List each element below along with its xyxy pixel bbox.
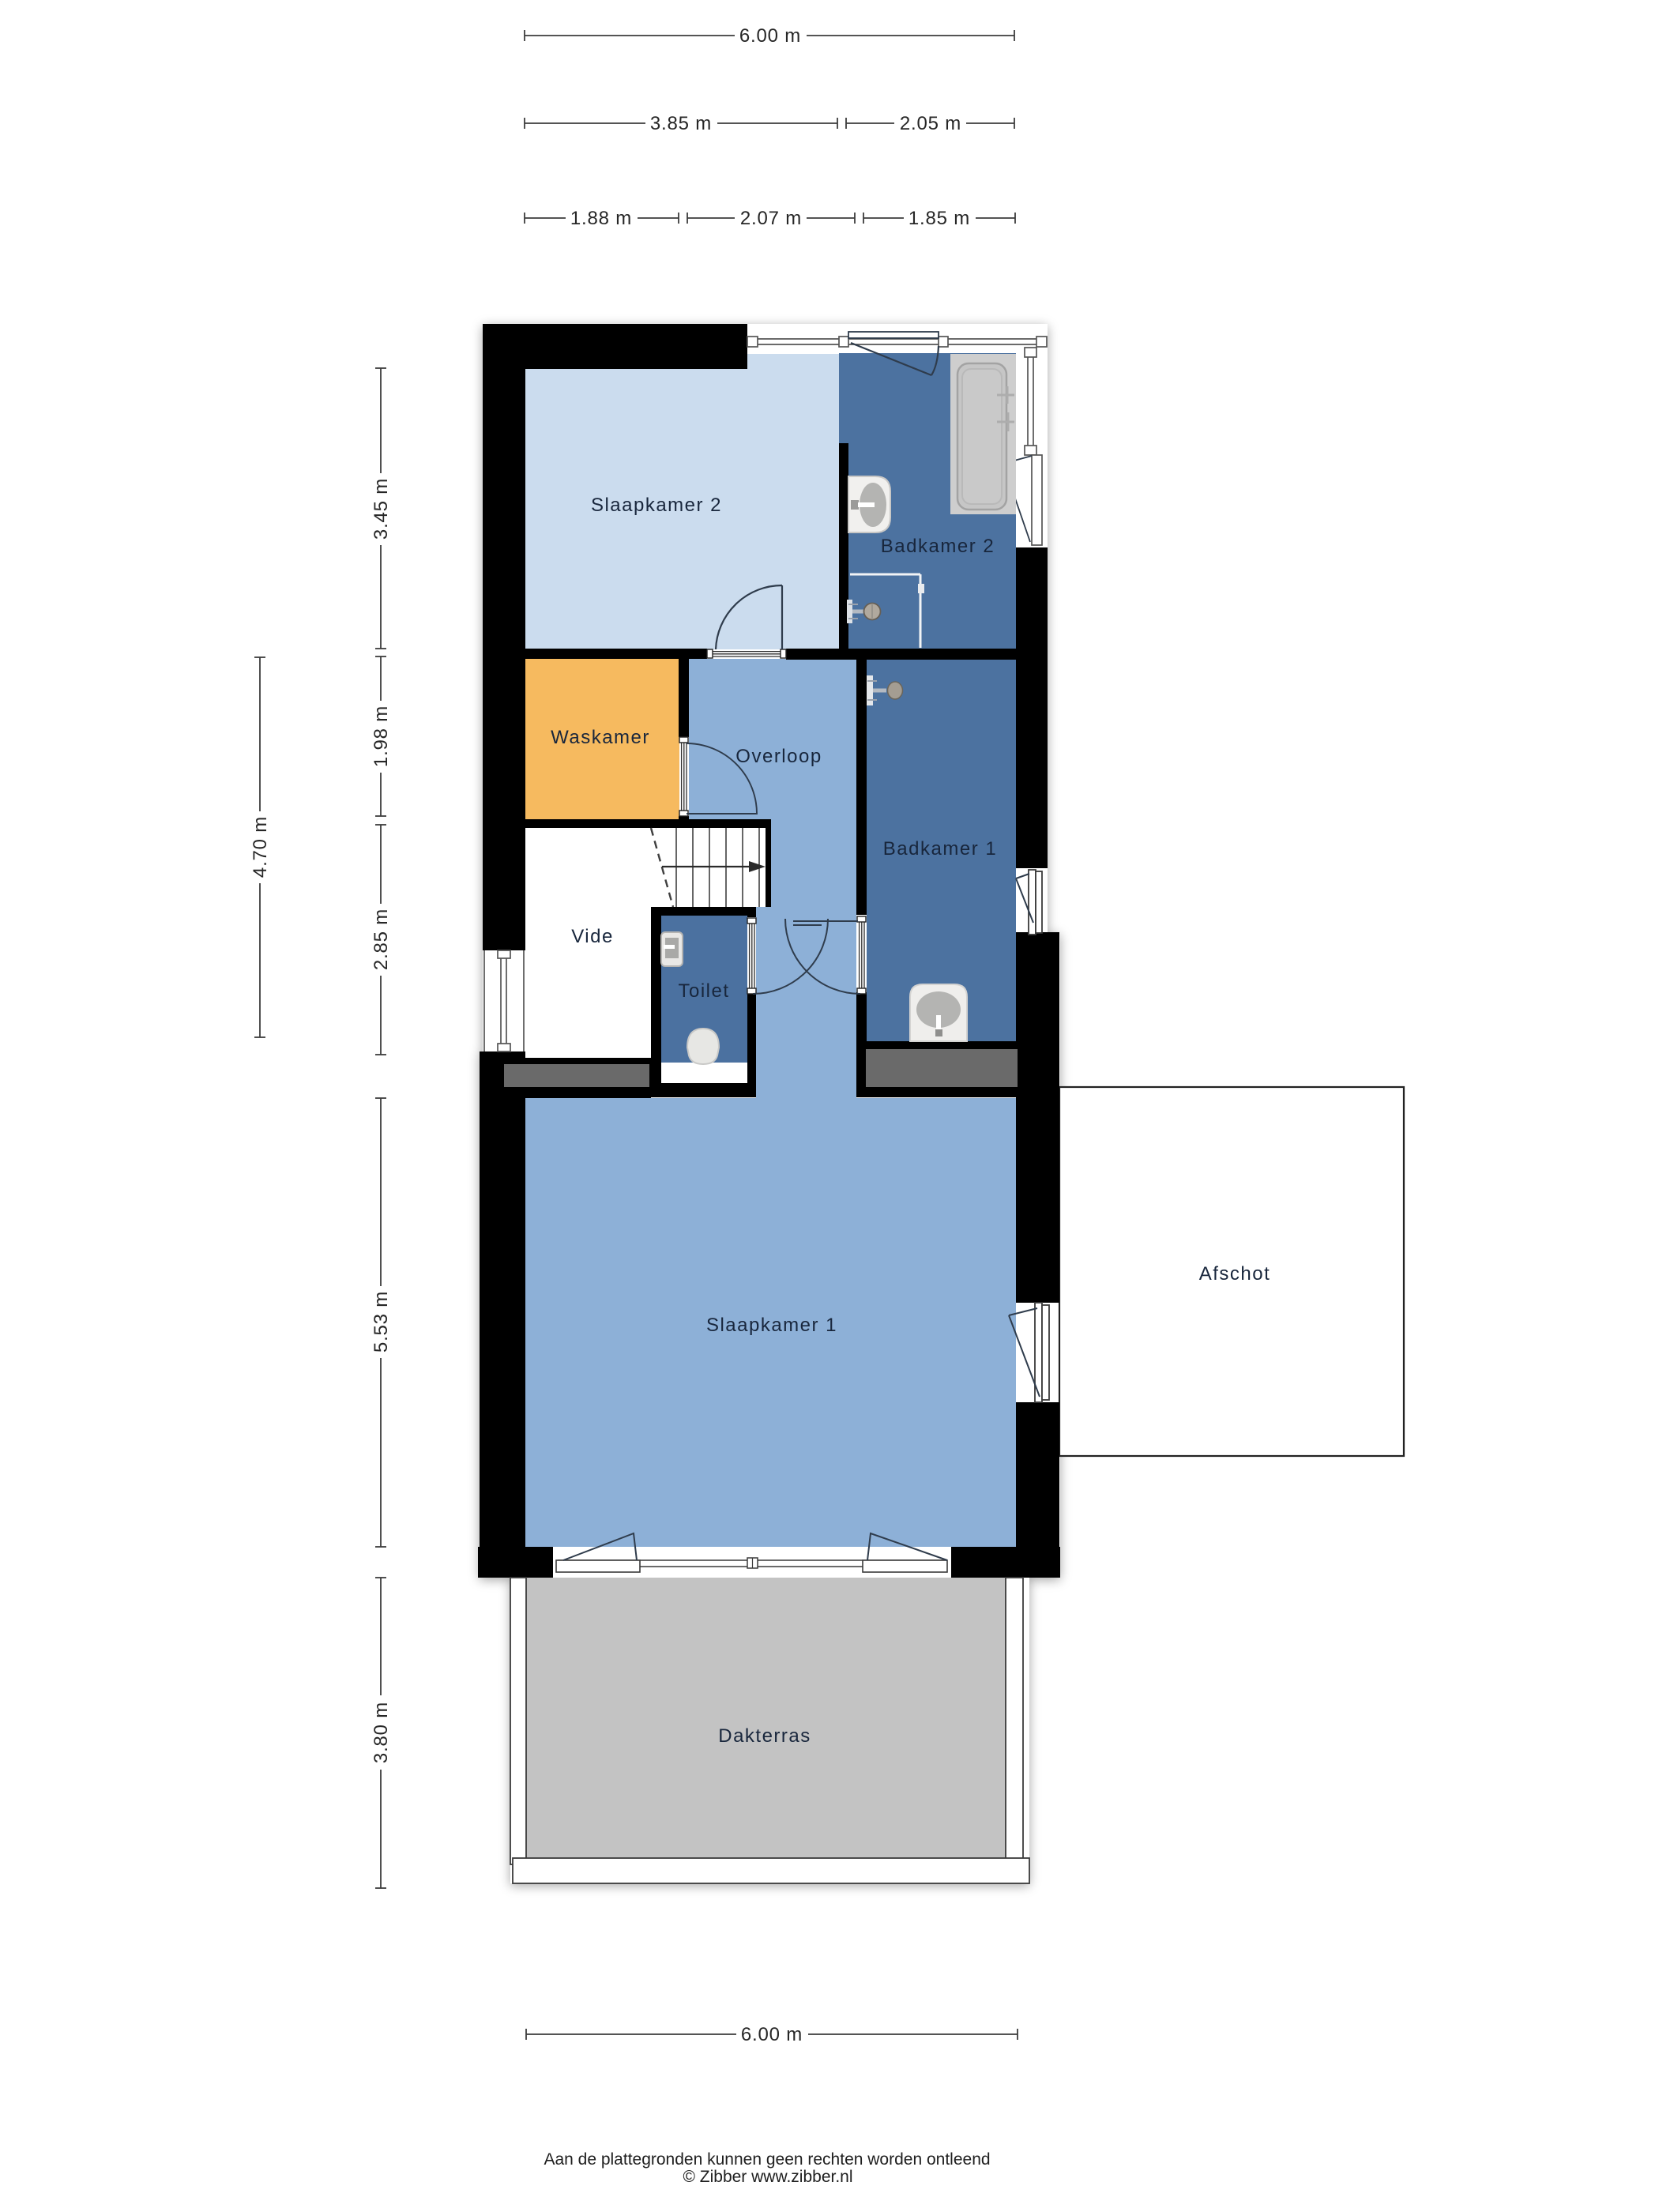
svg-text:Badkamer 2: Badkamer 2 [881,536,995,557]
svg-text:6.00 m: 6.00 m [739,25,801,47]
svg-text:Aan de plattegronden kunnen ge: Aan de plattegronden kunnen geen rechten… [544,2150,990,2169]
svg-text:Afschot: Afschot [1199,1263,1271,1285]
svg-text:6.00 m: 6.00 m [741,2024,803,2045]
svg-text:3.85 m: 3.85 m [650,113,712,134]
svg-text:2.07 m: 2.07 m [740,208,802,229]
svg-text:Waskamer: Waskamer [551,727,650,748]
svg-text:2.85 m: 2.85 m [371,908,392,970]
svg-text:Badkamer 1: Badkamer 1 [883,838,997,860]
svg-text:1.98 m: 1.98 m [371,705,392,767]
svg-text:Vide: Vide [571,926,614,947]
svg-text:3.45 m: 3.45 m [371,478,392,540]
svg-text:1.88 m: 1.88 m [570,208,632,229]
svg-text:5.53 m: 5.53 m [371,1291,392,1352]
svg-text:3.80 m: 3.80 m [371,1702,392,1763]
svg-text:Slaapkamer 2: Slaapkamer 2 [591,495,722,516]
svg-text:Dakterras: Dakterras [718,1725,811,1747]
svg-text:2.05 m: 2.05 m [900,113,961,134]
svg-text:© Zibber www.zibber.nl: © Zibber www.zibber.nl [683,2168,852,2186]
svg-text:Slaapkamer 1: Slaapkamer 1 [706,1315,837,1336]
svg-text:4.70 m: 4.70 m [250,816,271,878]
svg-text:Toilet: Toilet [678,980,729,1002]
svg-text:1.85 m: 1.85 m [908,208,970,229]
svg-text:Overloop: Overloop [735,746,822,767]
